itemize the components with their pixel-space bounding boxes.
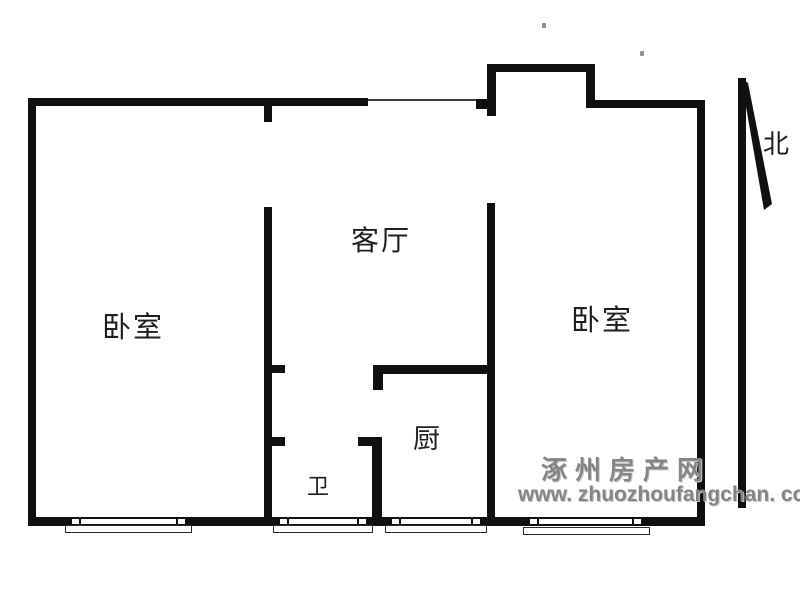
- interior-wall-right: [487, 203, 495, 517]
- window: [528, 517, 643, 526]
- exterior-wall-left: [28, 98, 36, 525]
- hall-stub-upper: [272, 365, 285, 373]
- floorplan: 卧室 客厅 卧室 厨 卫 北 涿州房产网 www. zhuozhoufangch…: [0, 0, 800, 599]
- scan-artifact-dot: [542, 23, 546, 28]
- room-label-living-room: 客厅: [351, 228, 411, 256]
- entrance-opening-line: [368, 99, 480, 101]
- watermark-site-url: www. zhuozhoufangchan. com: [518, 484, 774, 505]
- exterior-wall-bottom: [482, 517, 528, 526]
- kitchen-wall-left: [372, 437, 382, 517]
- room-label-bathroom: 卫: [307, 476, 329, 498]
- entrance-jamb-nub: [476, 99, 487, 109]
- window-cap: [528, 517, 539, 526]
- entry-alcove-wall-top: [487, 64, 595, 72]
- exterior-wall-top-left: [28, 98, 368, 106]
- room-label-bedroom-right: 卧室: [571, 307, 633, 336]
- scan-artifact-dot: [640, 51, 644, 56]
- window-sill: [523, 527, 650, 535]
- watermark-site-name: 涿州房产网: [538, 457, 714, 483]
- room-label-kitchen: 厨: [413, 426, 440, 453]
- window-cap: [632, 517, 643, 526]
- north-label: 北: [763, 132, 789, 158]
- exterior-wall-top-right: [586, 100, 705, 108]
- exterior-wall-bottom: [643, 517, 705, 526]
- interior-wall-left-stub: [264, 104, 272, 122]
- window-sill: [65, 525, 192, 533]
- bathroom-wall-stub-right: [358, 437, 382, 446]
- bathroom-wall-stub-left: [272, 437, 285, 446]
- interior-wall-left: [264, 207, 272, 517]
- window-sill: [273, 525, 373, 533]
- exterior-wall-bottom: [28, 517, 70, 526]
- exterior-wall-bottom: [187, 517, 278, 526]
- kitchen-wall-left-stub: [373, 365, 383, 390]
- window-sill: [385, 525, 487, 533]
- kitchen-wall-top: [373, 365, 494, 374]
- room-label-bedroom-left: 卧室: [102, 314, 164, 343]
